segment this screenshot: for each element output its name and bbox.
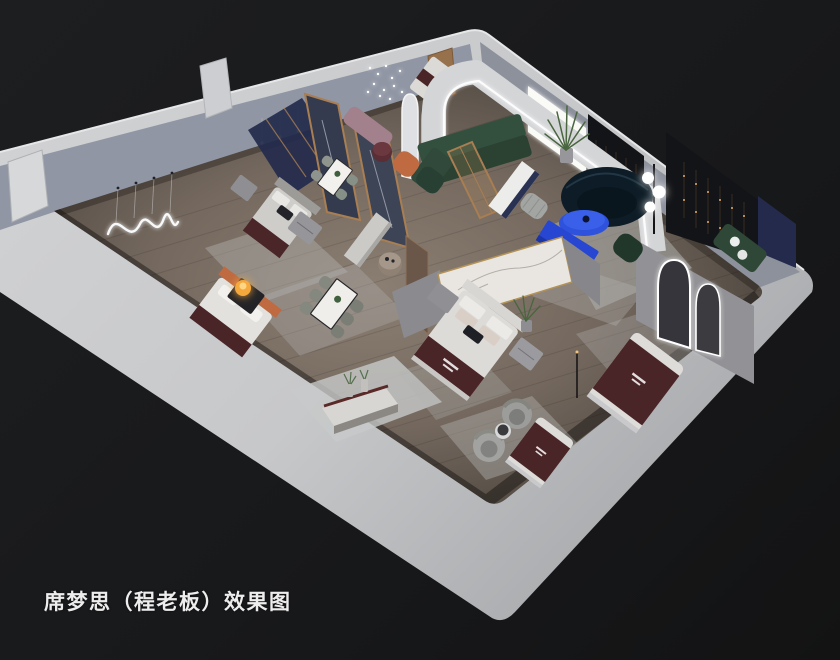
render-canvas: 席梦思（程老板）效果图 [0,0,840,660]
chrome-side-table [495,423,511,439]
door-panel [200,58,232,118]
render-caption: 席梦思（程老板）效果图 [44,586,292,616]
amber-orb-lamp [235,280,251,296]
floorplan-render [0,0,840,660]
round-coffee-table [372,142,392,162]
round-display-table [378,252,402,276]
